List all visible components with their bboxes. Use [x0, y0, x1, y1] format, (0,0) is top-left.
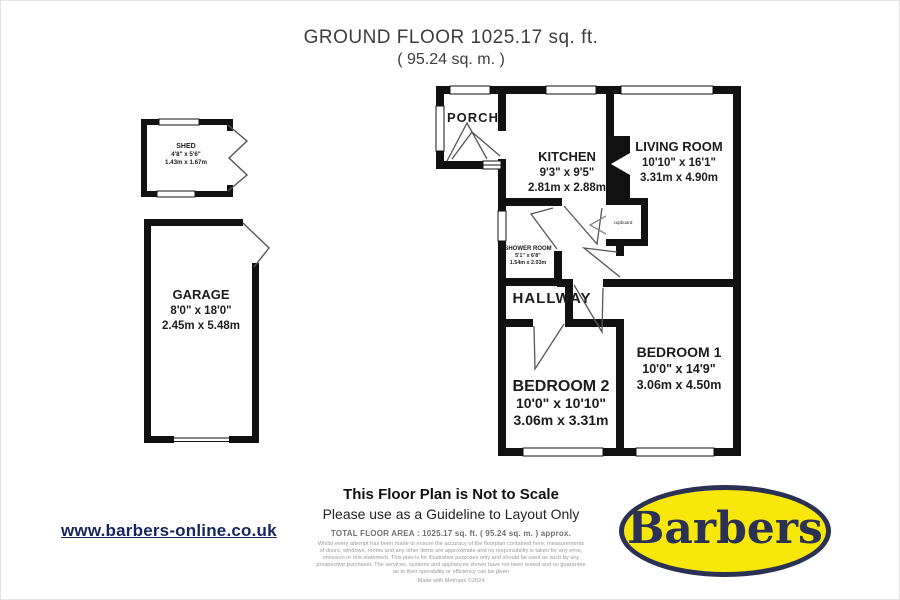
shower-door-swing	[531, 208, 557, 249]
bedroom2-dims-metric: 3.06m x 3.31m	[514, 412, 609, 428]
living-room-door-swing	[584, 248, 620, 277]
bedroom2-door-swing	[534, 324, 564, 369]
shower-room-window	[498, 211, 506, 241]
barbers-logo: Barbers	[619, 485, 831, 577]
kitchen-window	[546, 86, 596, 94]
bedroom1-dims-imperial: 10'0" x 14'9"	[642, 362, 715, 376]
living-room-dims-imperial: 10'10" x 16'1"	[642, 157, 716, 169]
disclaimer-text: Whilst every attempt has been made to en…	[301, 541, 601, 576]
made-with-text: Made with Metropix ©2024	[301, 578, 601, 584]
cupboard-door-swing	[590, 216, 606, 234]
room-garage: GARAGE 8'0" x 18'0" 2.45m x 5.48m	[144, 219, 269, 443]
bedroom1-label: BEDROOM 1	[637, 344, 722, 360]
shed-label: SHED	[176, 143, 195, 150]
bedroom1-dims-metric: 3.06m x 4.50m	[637, 378, 722, 392]
floorplan-page: GROUND FLOOR 1025.17 sq. ft. ( 95.24 sq.…	[0, 0, 900, 600]
shed-dims-metric: 1.43m x 1.67m	[165, 159, 207, 166]
bedroom2-window	[523, 448, 603, 456]
garage-label: GARAGE	[172, 287, 229, 302]
total-floor-area: TOTAL FLOOR AREA : 1025.17 sq. ft. ( 95.…	[301, 529, 601, 538]
porch-label: PORCH	[447, 110, 499, 125]
garage-side-door-swing	[243, 223, 269, 267]
kitchen-dims-imperial: 9'3" x 9'5"	[540, 167, 595, 179]
guideline-subheading: Please use as a Guideline to Layout Only	[301, 506, 601, 522]
garage-dims-metric: 2.45m x 5.48m	[162, 320, 240, 332]
hallway-label: HALLWAY	[513, 290, 592, 307]
shower-room-dims-imperial: 5'1" x 6'8"	[515, 253, 541, 259]
website-link[interactable]: www.barbers-online.co.uk	[61, 521, 291, 541]
bedroom2-dims-imperial: 10'0" x 10'10"	[516, 395, 606, 411]
not-to-scale-heading: This Floor Plan is Not to Scale	[301, 486, 601, 503]
bedroom1-window	[636, 448, 714, 456]
porch-side-window	[436, 106, 444, 151]
living-room-window	[621, 86, 713, 94]
porch-top-window	[450, 86, 490, 94]
bedroom2-label: BEDROOM 2	[513, 378, 610, 395]
living-room-label: LIVING ROOM	[635, 139, 722, 154]
shower-room-label: SHOWER ROOM	[504, 246, 551, 252]
shed-door-swing	[228, 125, 247, 191]
kitchen-dims-metric: 2.81m x 2.88m	[528, 182, 606, 194]
garage-dims-imperial: 8'0" x 18'0"	[170, 305, 231, 317]
shed-window-top	[159, 119, 199, 125]
porch-door-swing	[452, 132, 500, 159]
shed-dims-imperial: 4'8" x 5'6"	[171, 151, 201, 158]
porch-door-swing	[447, 123, 487, 161]
room-shed: SHED 4'8" x 5'6" 1.43m x 1.67m	[141, 119, 247, 197]
kitchen-label: KITCHEN	[538, 149, 596, 164]
shower-room-dims-metric: 1.54m x 2.03m	[510, 260, 547, 266]
barbers-logo-text: Barbers	[627, 507, 823, 551]
kitchen-door-swing	[564, 206, 602, 244]
footer: This Floor Plan is Not to Scale Please u…	[301, 486, 601, 584]
room-labels: PORCH KITCHEN 9'3" x 9'5" 2.81m x 2.88m …	[447, 110, 723, 428]
shed-window-bottom	[157, 191, 195, 197]
living-room-dims-metric: 3.31m x 4.90m	[640, 172, 718, 184]
cupboard-label: cupboard	[614, 220, 633, 225]
